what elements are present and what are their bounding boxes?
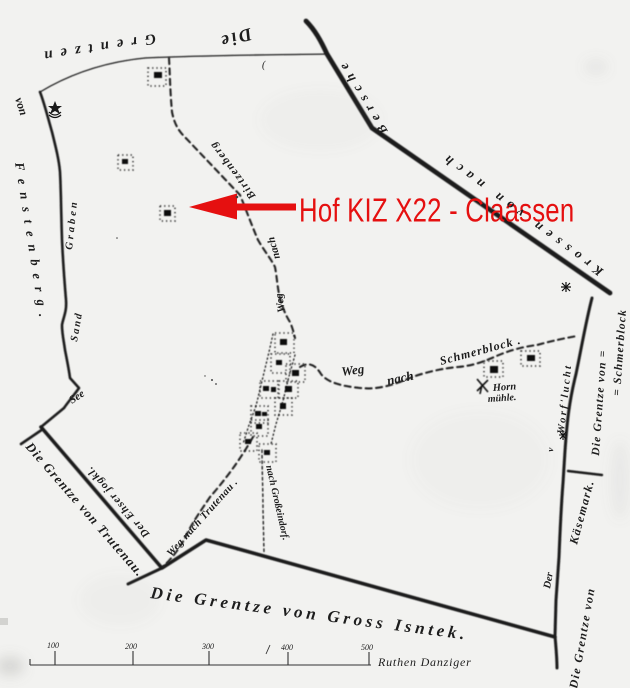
svg-text:100: 100 <box>47 641 59 650</box>
svg-text:400: 400 <box>281 643 293 652</box>
svg-text:Ruthen Danziger: Ruthen Danziger <box>377 655 472 669</box>
svg-text:200: 200 <box>125 642 137 651</box>
svg-text:mühle.: mühle. <box>487 392 516 405</box>
svg-text:300: 300 <box>201 642 214 651</box>
svg-text:500: 500 <box>361 643 373 652</box>
